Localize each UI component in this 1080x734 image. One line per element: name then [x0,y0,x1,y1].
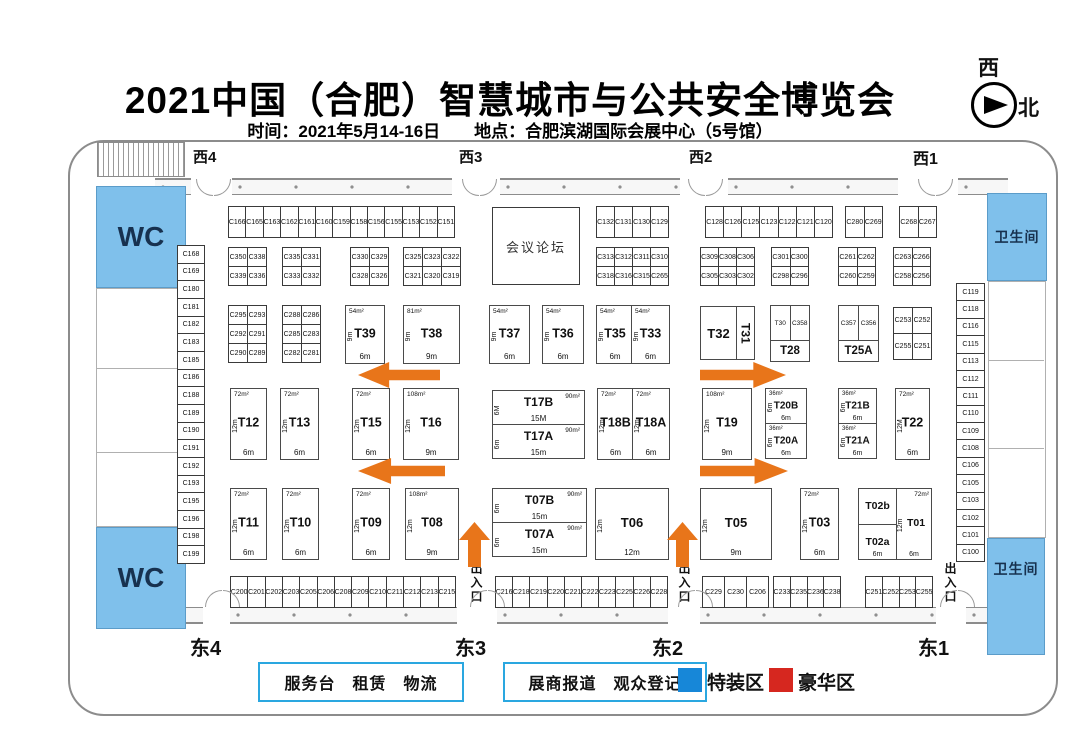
booth-cell-c181: C181 [178,299,205,317]
booth-cell-c269: C269 [865,207,884,238]
booth-cell-c285: C285 [283,325,302,344]
booth-cell-c261: C261 [839,248,858,267]
booth-cell-c205: C205 [300,577,317,608]
booth-front-dim: 6m [839,415,876,422]
booth-block-c313: C313C312C311C310C318C316C315C265 [596,247,669,286]
booth-cell-c155: C155 [385,207,402,238]
t-booth-t18a: 72m²12mT18A6m [632,388,670,460]
legend-deluxe-swatch [769,668,793,692]
booth-id: T21A [839,436,876,447]
booth-area: 72m² [899,391,914,398]
booth-block-c295: C295C293C292C291C290C289 [228,305,267,363]
gate-east-4: 东4 [190,632,221,661]
booth-cell-c183: C183 [178,334,205,352]
booth-cell-c213: C213 [421,577,438,608]
booth-front-dim: 6m [597,352,633,361]
booth-cell-c320: C320 [423,267,442,286]
booth-cell-c113: C113 [957,354,985,371]
booth-area: 36m² [769,391,783,397]
booth-cell-c336: C336 [248,267,267,286]
wall-segment [232,178,452,195]
booth-front-dim: 6m [766,415,806,422]
t-booth-t08: 108m²12mT089m [405,488,459,560]
booth-block-t32-t31: T32 T31 [700,306,755,360]
booth-cell-c188: C188 [178,387,205,405]
booth-block-c261: C261C262C260C259 [838,247,876,286]
booth-id: T38 [404,326,459,340]
booth-cell-c211: C211 [387,577,404,608]
wall-segment [500,178,680,195]
booth-cell-c152: C152 [420,207,437,238]
booth-cell-c105: C105 [957,475,985,492]
t-booth-t11: 72m²12mT116m [230,488,267,560]
booth-id: T17A [493,429,584,443]
booth-front-dim: 6m [859,551,896,558]
t-booth-t38: 81m²9mT389m [403,305,460,364]
booth-area: 54m² [349,308,364,315]
booth-cell-c156: C156 [368,207,385,238]
booth-cell-c290: C290 [229,344,248,363]
booth-area: 108m² [706,391,724,398]
booth-cell-c267: C267 [919,207,938,238]
booth-block-c325: C325C323C322C321C320C319 [403,247,461,286]
wall-segment [728,178,898,195]
booth-front-dim: 6m [353,448,389,457]
booth-id: T19 [703,416,751,430]
booth-cell-c329: C329 [370,248,389,267]
booth-strip-top-right-c: C280C269 [845,206,883,238]
wall-segment [497,607,668,624]
booth-cell-c219: C219 [530,577,547,608]
t-booth-t39: 54m²9mT396m [345,305,385,364]
t-booth-t15: 72m²12mT156m [352,388,390,460]
booth-cell-c130: C130 [633,207,651,238]
booth-front-dim: 6m [231,448,266,457]
booth-strip-top-right-b: C128C126C125C123C122C121C120 [705,206,833,238]
booth-cell-c121: C121 [797,207,815,238]
booth-id: T39 [346,326,384,340]
booth-area: 72m² [804,491,819,498]
booth-strip-top-right-d: C268C267 [899,206,937,238]
booth-strip-bottom-5: C251C252C253C255 [865,576,933,608]
legend-service-box: 服务台 租赁 物流 [258,662,464,702]
t-booth-t33: 54m²9mT336m [631,305,670,364]
t-booth-t20a: 36m²6mT20A6m [765,423,807,459]
room-divider [96,368,183,369]
booth-cell-c357: C357 [839,306,859,340]
booth-front-dim: 15m [493,512,586,521]
booth-front-dim: 9m [404,448,458,457]
t-booth-t17a: 90m²6mT17A15m [492,424,585,459]
booth-cell-c310: C310 [651,248,669,267]
booth-cell-c223: C223 [599,577,616,608]
booth-cell-c312: C312 [615,248,633,267]
booth-cell-c125: C125 [742,207,760,238]
gate-west-2: 西2 [689,146,712,167]
booth-front-dim: 6m [490,352,529,361]
booth-front-dim: 6m [543,352,583,361]
booth-block-c350: C350C338C339C336 [228,247,267,286]
booth-strip-top-right-a: C132C131C130C129 [596,206,669,238]
booth-cell-c160: C160 [316,207,333,238]
booth-cell-c305: C305 [701,267,719,286]
booth-cell-c226: C226 [634,577,651,608]
booth-area: 54m² [635,308,650,315]
t-booth-t19: 108m²12mT199m [702,388,752,460]
booth-front-dim: 6m [896,448,929,457]
booth-cell-c129: C129 [651,207,669,238]
booth-block-c301: C301C300C298C296 [771,247,809,286]
booth-cell-c209: C209 [352,577,369,608]
booth-strip-bottom-1: C200C201C202C203C205C206C208C209C210C211… [230,576,456,608]
booth-cell-c263: C263 [894,248,913,267]
booth-cell-c255: C255 [894,334,913,360]
booth-id: T36 [543,326,583,340]
booth-front-dim: 15M [493,414,584,423]
booth-cell-c260: C260 [839,267,858,286]
booth-id: T07B [493,493,586,507]
booth-strip-bottom-4: C233C235C236C238 [773,576,841,608]
booth-block-c263: C263C266C258C256 [893,247,931,286]
t-booth-t05: 12mT059m [700,488,772,560]
booth-cell-c132: C132 [597,207,615,238]
restroom-top-right: 卫生间 [987,193,1047,281]
booth-cell-c253: C253 [900,577,917,608]
booth-area: 72m² [356,391,371,398]
legend-special-label: 特装区 [707,668,764,695]
booth-id: T07A [493,527,586,541]
booth-cell-c303: C303 [719,267,737,286]
booth-area: 72m² [234,391,249,398]
compass-needle-icon [984,96,1008,114]
booth-cell-c253: C253 [894,308,913,334]
booth-block-t25a: C357 C356 T25A [838,305,879,362]
booth-front-dim: 6m [598,448,633,457]
booth-front-dim: 6m [897,551,931,558]
booth-cell-c323: C323 [423,248,442,267]
booth-id: T35 [597,326,633,340]
booth-front-dim: 6m [281,448,318,457]
booth-cell-c230: C230 [725,577,747,608]
booth-cell-c298: C298 [772,267,791,286]
t-booth-t20b: 36m²6mT20B6m [765,388,807,424]
booth-cell-c168: C168 [178,246,205,264]
booth-cell-c350: C350 [229,248,248,267]
booth-cell-c289: C289 [248,344,267,363]
booth-cell-c265: C265 [651,267,669,286]
booth-block-c330: C330C329C328C326 [350,247,389,286]
booth-cell-c313: C313 [597,248,615,267]
booth-cell-c295: C295 [229,306,248,325]
booth-cell-c306: C306 [737,248,755,267]
booth-cell-c325: C325 [404,248,423,267]
stairs-hatch [97,142,185,177]
booth-cell-c112: C112 [957,371,985,388]
booth-cell-c309: C309 [701,248,719,267]
booth-id: T18A [633,416,669,430]
restroom-label: 卫生间 [995,227,1040,247]
booth-id-t31: T31 [736,307,754,359]
booth-front-dim: 9m [404,352,459,361]
booth-cell-c332: C332 [302,267,321,286]
booth-cell-c201: C201 [248,577,265,608]
booth-cell-c255: C255 [916,577,933,608]
booth-cell-c319: C319 [442,267,461,286]
booth-strip-bottom-2: C216C218C219C220C221C222C223C225C226C228 [495,576,668,608]
booth-cell-c316: C316 [615,267,633,286]
booth-cell-c233: C233 [774,577,791,608]
booth-id: T11 [231,516,266,530]
booth-cell-c288: C288 [283,306,302,325]
t-booth-t13: 72m²12mT136m [280,388,319,460]
booth-front-dim: 6m [632,352,669,361]
booth-strip-top-left: C166C165C163C162C161C160C159C158C156C155… [228,206,455,238]
booth-cell-c212: C212 [404,577,421,608]
booth-block-c335: C335C331C333C332 [282,247,321,286]
booth-front-dim: 6m [839,450,876,457]
booth-area: 72m² [286,491,301,498]
booth-id: T12 [231,416,266,430]
booth-cell-c196: C196 [178,511,205,529]
booth-id: T08 [406,516,458,530]
t-booth-t18b: 72m²12mT18B6m [597,388,634,460]
restroom-bottom-right: 卫生间 [987,538,1045,655]
booth-cell-c115: C115 [957,336,985,353]
booth-cell-c165: C165 [246,207,263,238]
booth-cell-c326: C326 [370,267,389,286]
booth-cell-c296: C296 [791,267,810,286]
booth-cell-c202: C202 [266,577,283,608]
booth-cell-c283: C283 [302,325,321,344]
legend-special-swatch [678,668,702,692]
booth-cell-c301: C301 [772,248,791,267]
booth-front-dim: 15m [493,448,584,457]
booth-cell-c333: C333 [283,267,302,286]
booth-cell-c251: C251 [913,334,932,360]
booth-cell-c252: C252 [883,577,900,608]
booth-cell-c116: C116 [957,319,985,336]
booth-cell-c206: C206 [318,577,335,608]
booth-cell-c335: C335 [283,248,302,267]
booth-id-t02b: T02b [859,489,896,525]
booth-cell-c292: C292 [229,325,248,344]
booth-cell-c169: C169 [178,264,205,282]
booth-id: T16 [404,416,458,430]
booth-cell-c203: C203 [283,577,300,608]
gate-west-4: 西4 [193,146,216,167]
wc-area-bottom-left: WC [96,527,186,629]
booth-block-c253: C253C252C255C251 [893,307,932,360]
booth-cell-c128: C128 [706,207,724,238]
compass-west-label: 西 [978,52,999,82]
booth-area: 54m² [493,308,508,315]
booth-cell-c110: C110 [957,406,985,423]
forum-label: 会议论坛 [506,237,566,256]
t-booth-t36: 54m²9mT366m [542,305,584,364]
t-booth-t21b: 36m²6mT21B6m [838,388,877,424]
t-booth-t21a: 36m²6mT21A6m [838,423,877,459]
wall-segment [230,607,457,624]
booth-id-t25a: T25A [839,340,878,361]
booth-cell-c300: C300 [791,248,810,267]
booth-cell-c195: C195 [178,493,205,511]
booth-cell-c106: C106 [957,458,985,475]
booth-cell-c252: C252 [913,308,932,334]
booth-cell-c158: C158 [351,207,368,238]
booth-area: 54m² [600,308,615,315]
booth-id: T33 [632,326,669,340]
booth-cell-c356: C356 [859,306,878,340]
room-divider [96,452,183,453]
corridor-room [96,288,185,527]
booth-cell-c331: C331 [302,248,321,267]
booth-front-dim: 6m [353,548,389,557]
booth-front-dim: 6m [231,548,266,557]
booth-cell-c262: C262 [858,248,877,267]
t-booth-t09: 72m²12mT096m [352,488,390,560]
booth-cell-c225: C225 [616,577,633,608]
booth-area: 72m² [284,391,299,398]
booth-column-right: C119C118C116C115C113C112C111C110C109C108… [956,283,985,562]
booth-cell-c358: C358 [791,306,810,340]
wall-segment [700,607,936,624]
booth-area: 72m² [356,491,371,498]
booth-cell-c126: C126 [724,207,742,238]
booth-cell-c118: C118 [957,301,985,318]
booth-block-c288: C288C286C285C283C282C281 [282,305,321,363]
compass-icon [971,82,1017,128]
booth-cell-c281: C281 [302,344,321,363]
conference-forum-area: 会议论坛 [492,207,580,285]
booth-area: 54m² [546,308,561,315]
booth-id: T09 [353,516,389,530]
booth-cell-c286: C286 [302,306,321,325]
booth-cell-c100: C100 [957,545,985,562]
booth-cell-c210: C210 [369,577,386,608]
wc-label: WC [118,562,165,594]
booth-id: T06 [596,515,668,530]
booth-id: T37 [490,326,529,340]
wc-area-top-left: WC [96,186,186,288]
booth-cell-c222: C222 [582,577,599,608]
booth-cell-c108: C108 [957,440,985,457]
booth-cell-c268: C268 [900,207,919,238]
booth-cell-c218: C218 [513,577,530,608]
booth-id: T20A [766,436,806,447]
booth-cell-c259: C259 [858,267,877,286]
wc-label: WC [118,221,165,253]
booth-front-dim: 9m [703,448,751,457]
booth-cell-c182: C182 [178,317,205,335]
booth-front-dim: 6m [283,548,318,557]
booth-cell-c315: C315 [633,267,651,286]
t-booth-t06: 12mT0612m [595,488,669,560]
booth-cell-c199: C199 [178,546,205,564]
booth-cell-c339: C339 [229,267,248,286]
compass-north-label: 北 [1018,92,1039,122]
booth-cell-c120: C120 [815,207,833,238]
booth-area: 36m² [842,426,856,432]
booth-area: 81m² [407,308,422,315]
booth-area: 108m² [409,491,427,498]
booth-cell-c311: C311 [633,248,651,267]
booth-id: T13 [281,416,318,430]
booth-cell-c221: C221 [565,577,582,608]
booth-cell-c266: C266 [913,248,932,267]
booth-cell-c131: C131 [615,207,633,238]
booth-cell-c215: C215 [439,577,456,608]
booth-cell-c101: C101 [957,527,985,544]
booth-cell-c302: C302 [737,267,755,286]
booth-cell-c282: C282 [283,344,302,363]
booth-cell-c291: C291 [248,325,267,344]
booth-cell-c198: C198 [178,529,205,547]
booth-cell-c256: C256 [913,267,932,286]
booth-cell-c159: C159 [333,207,350,238]
legend-deluxe-label: 豪华区 [798,668,855,695]
booth-id-t32: T32 [701,307,736,359]
booth-cell-c189: C189 [178,405,205,423]
t-booth-t10: 72m²12mT106m [282,488,319,560]
booth-cell-c122: C122 [779,207,797,238]
booth-cell-c151: C151 [438,207,455,238]
booth-id: T20B [766,401,806,412]
booth-cell-c191: C191 [178,440,205,458]
booth-cell-c208: C208 [335,577,352,608]
booth-cell-c193: C193 [178,476,205,494]
booth-cell-c235: C235 [791,577,808,608]
booth-cell-c111: C111 [957,388,985,405]
booth-front-dim: 12m [596,548,668,557]
booth-id: T22 [896,416,929,430]
t-booth-t35: 54m²9mT356m [596,305,634,364]
booth-cell-c163: C163 [264,207,281,238]
booth-id-t02a: T02a [866,536,890,548]
booth-cell-c238: C238 [824,577,841,608]
booth-cell-c293: C293 [248,306,267,325]
booth-front-dim: 15m [493,546,586,555]
page-subtitle: 时间：2021年5月14-16日 地点：合肥滨湖国际会展中心（5号馆） [0,117,1020,142]
t-booth-t03: 72m²12mT036m [800,488,839,560]
booth-cell-c322: C322 [442,248,461,267]
booth-cell-c123: C123 [760,207,778,238]
booth-cell-c153: C153 [403,207,420,238]
corridor-room [988,281,1046,538]
booth-cell-c186: C186 [178,370,205,388]
booth-id-t28: T28 [771,340,809,361]
booth-id: T10 [283,516,318,530]
booth-front-dim: 6m [633,448,669,457]
booth-cell-c258: C258 [894,267,913,286]
booth-cell-c166: C166 [229,207,246,238]
booth-cell-c180: C180 [178,281,205,299]
booth-front-dim: 9m [406,548,458,557]
booth-cell-c162: C162 [281,207,298,238]
booth-block-t02-t01: T02b T02a 6m 72m² 12m T01 6m [858,488,932,560]
booth-cell-c161: C161 [299,207,316,238]
booth-id: T18B [598,416,633,430]
t-booth-t12: 72m²12mT126m [230,388,267,460]
booth-cell-c318: C318 [597,267,615,286]
room-divider [988,360,1044,361]
booth-id: T21B [839,401,876,412]
booth-id: T15 [353,416,389,430]
booth-column-left: C168C169C180C181C182C183C185C186C188C189… [177,245,205,564]
booth-front-dim: 6m [766,450,806,457]
t-booth-t07b: 90m²6mT07B15m [492,488,587,523]
booth-cell-c192: C192 [178,458,205,476]
booth-cell-c185: C185 [178,352,205,370]
